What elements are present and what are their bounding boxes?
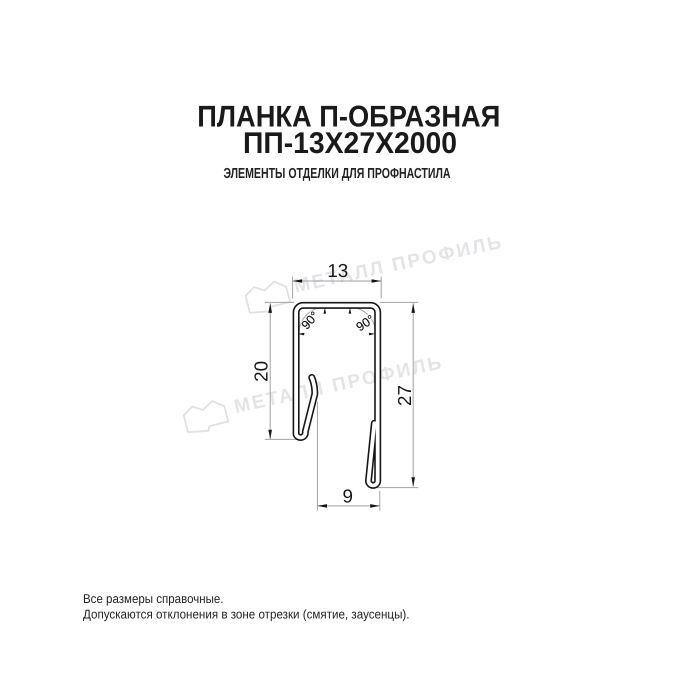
svg-text:ПП-13Х27Х2000: ПП-13Х27Х2000 (243, 127, 457, 160)
svg-text:13: 13 (327, 260, 348, 281)
svg-text:Допускаются отклонения в зоне: Допускаются отклонения в зоне отрезки (с… (83, 607, 410, 622)
svg-text:27: 27 (394, 385, 415, 406)
svg-text:Все размеры справочные.: Все размеры справочные. (83, 591, 224, 606)
svg-text:9: 9 (342, 486, 352, 507)
svg-text:20: 20 (250, 361, 271, 382)
svg-text:ЭЛЕМЕНТЫ ОТДЕЛКИ ДЛЯ ПРОФНАСТИ: ЭЛЕМЕНТЫ ОТДЕЛКИ ДЛЯ ПРОФНАСТИЛА (224, 166, 451, 182)
